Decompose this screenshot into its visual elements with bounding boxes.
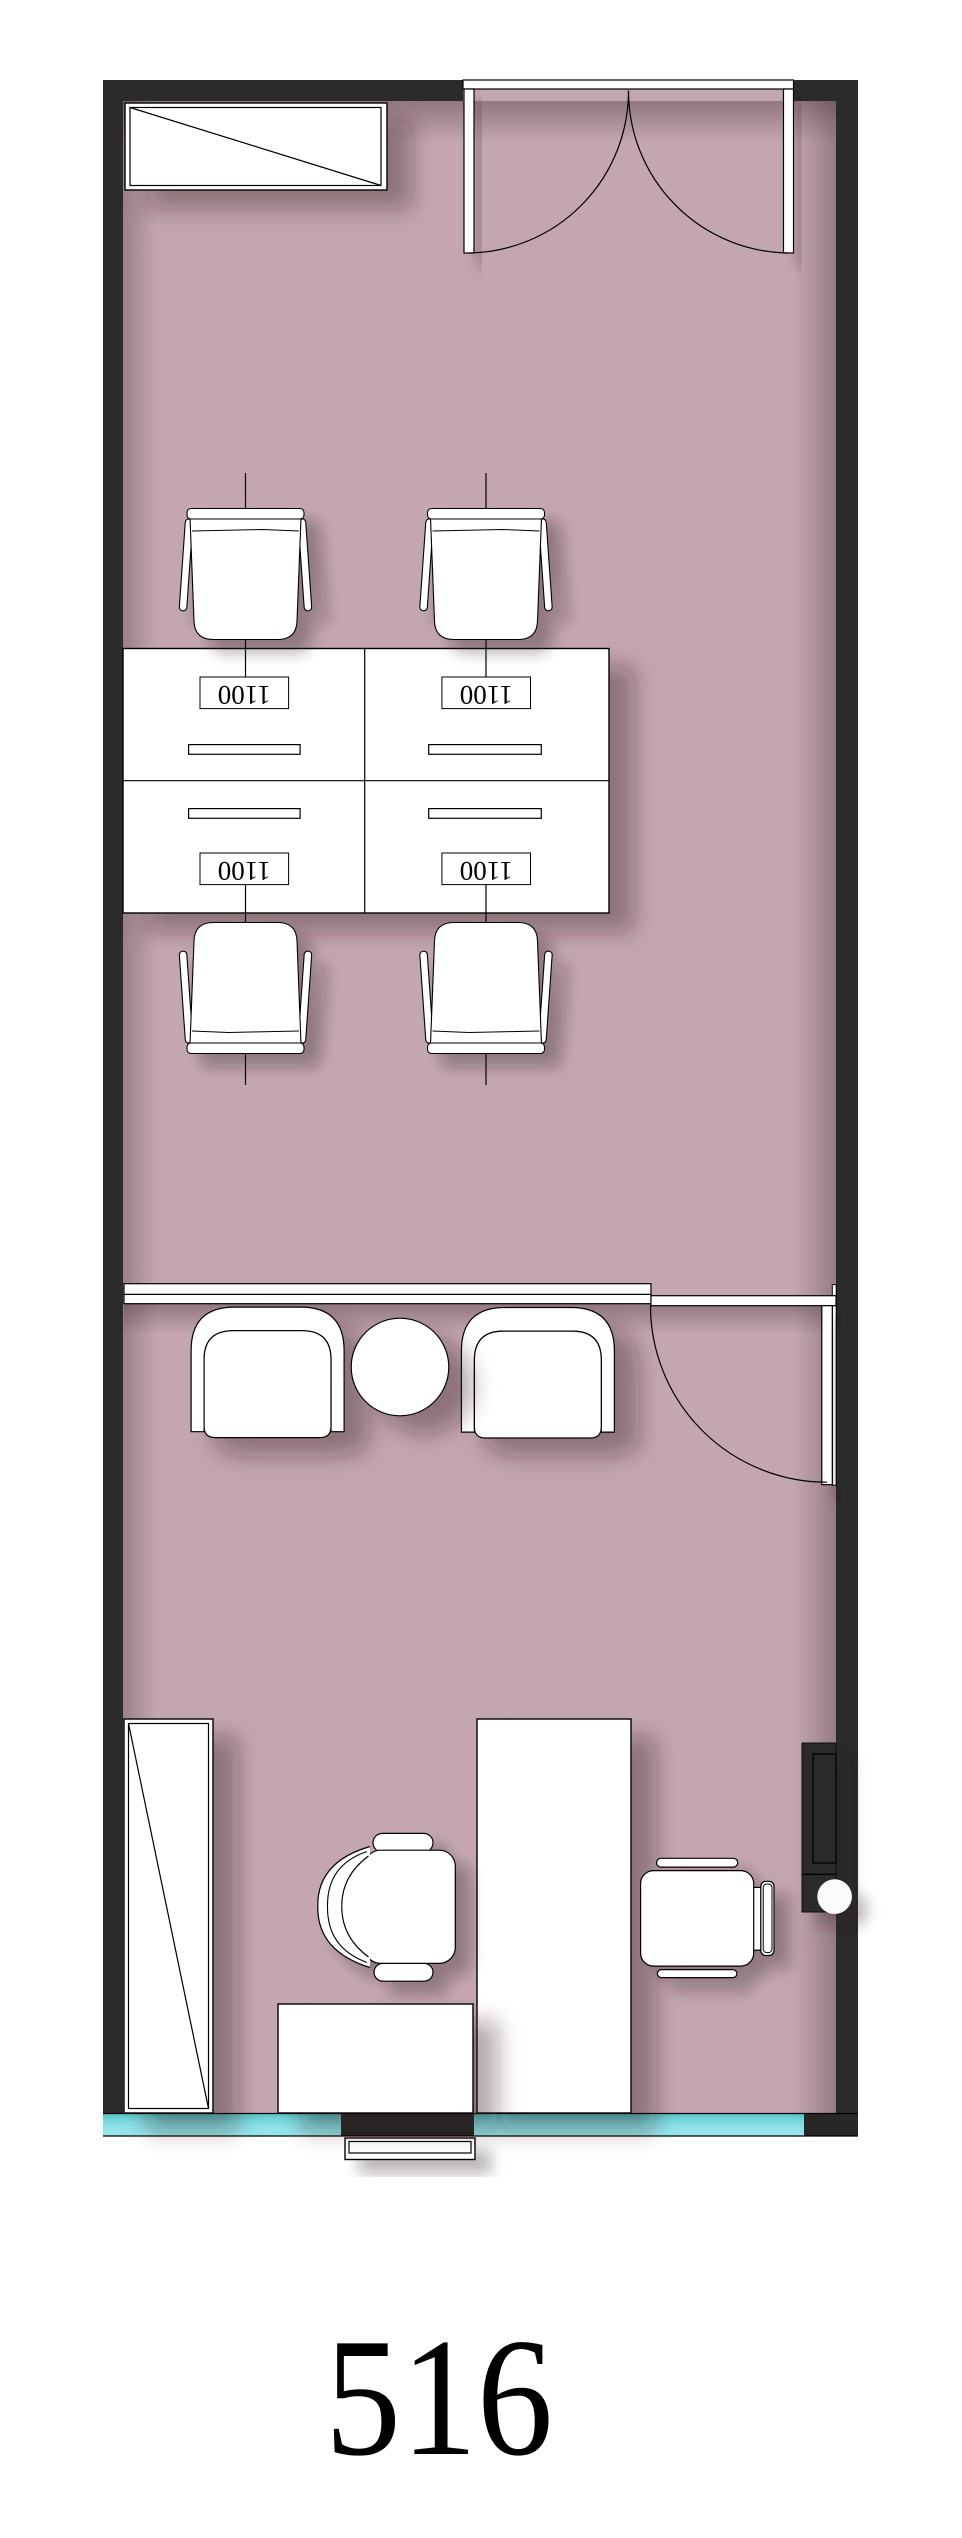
svg-text:1100: 1100 — [460, 680, 513, 710]
svg-text:1100: 1100 — [218, 856, 271, 886]
svg-text:1100: 1100 — [460, 856, 513, 886]
svg-text:516: 516 — [325, 2303, 553, 2491]
svg-text:1100: 1100 — [218, 680, 271, 710]
